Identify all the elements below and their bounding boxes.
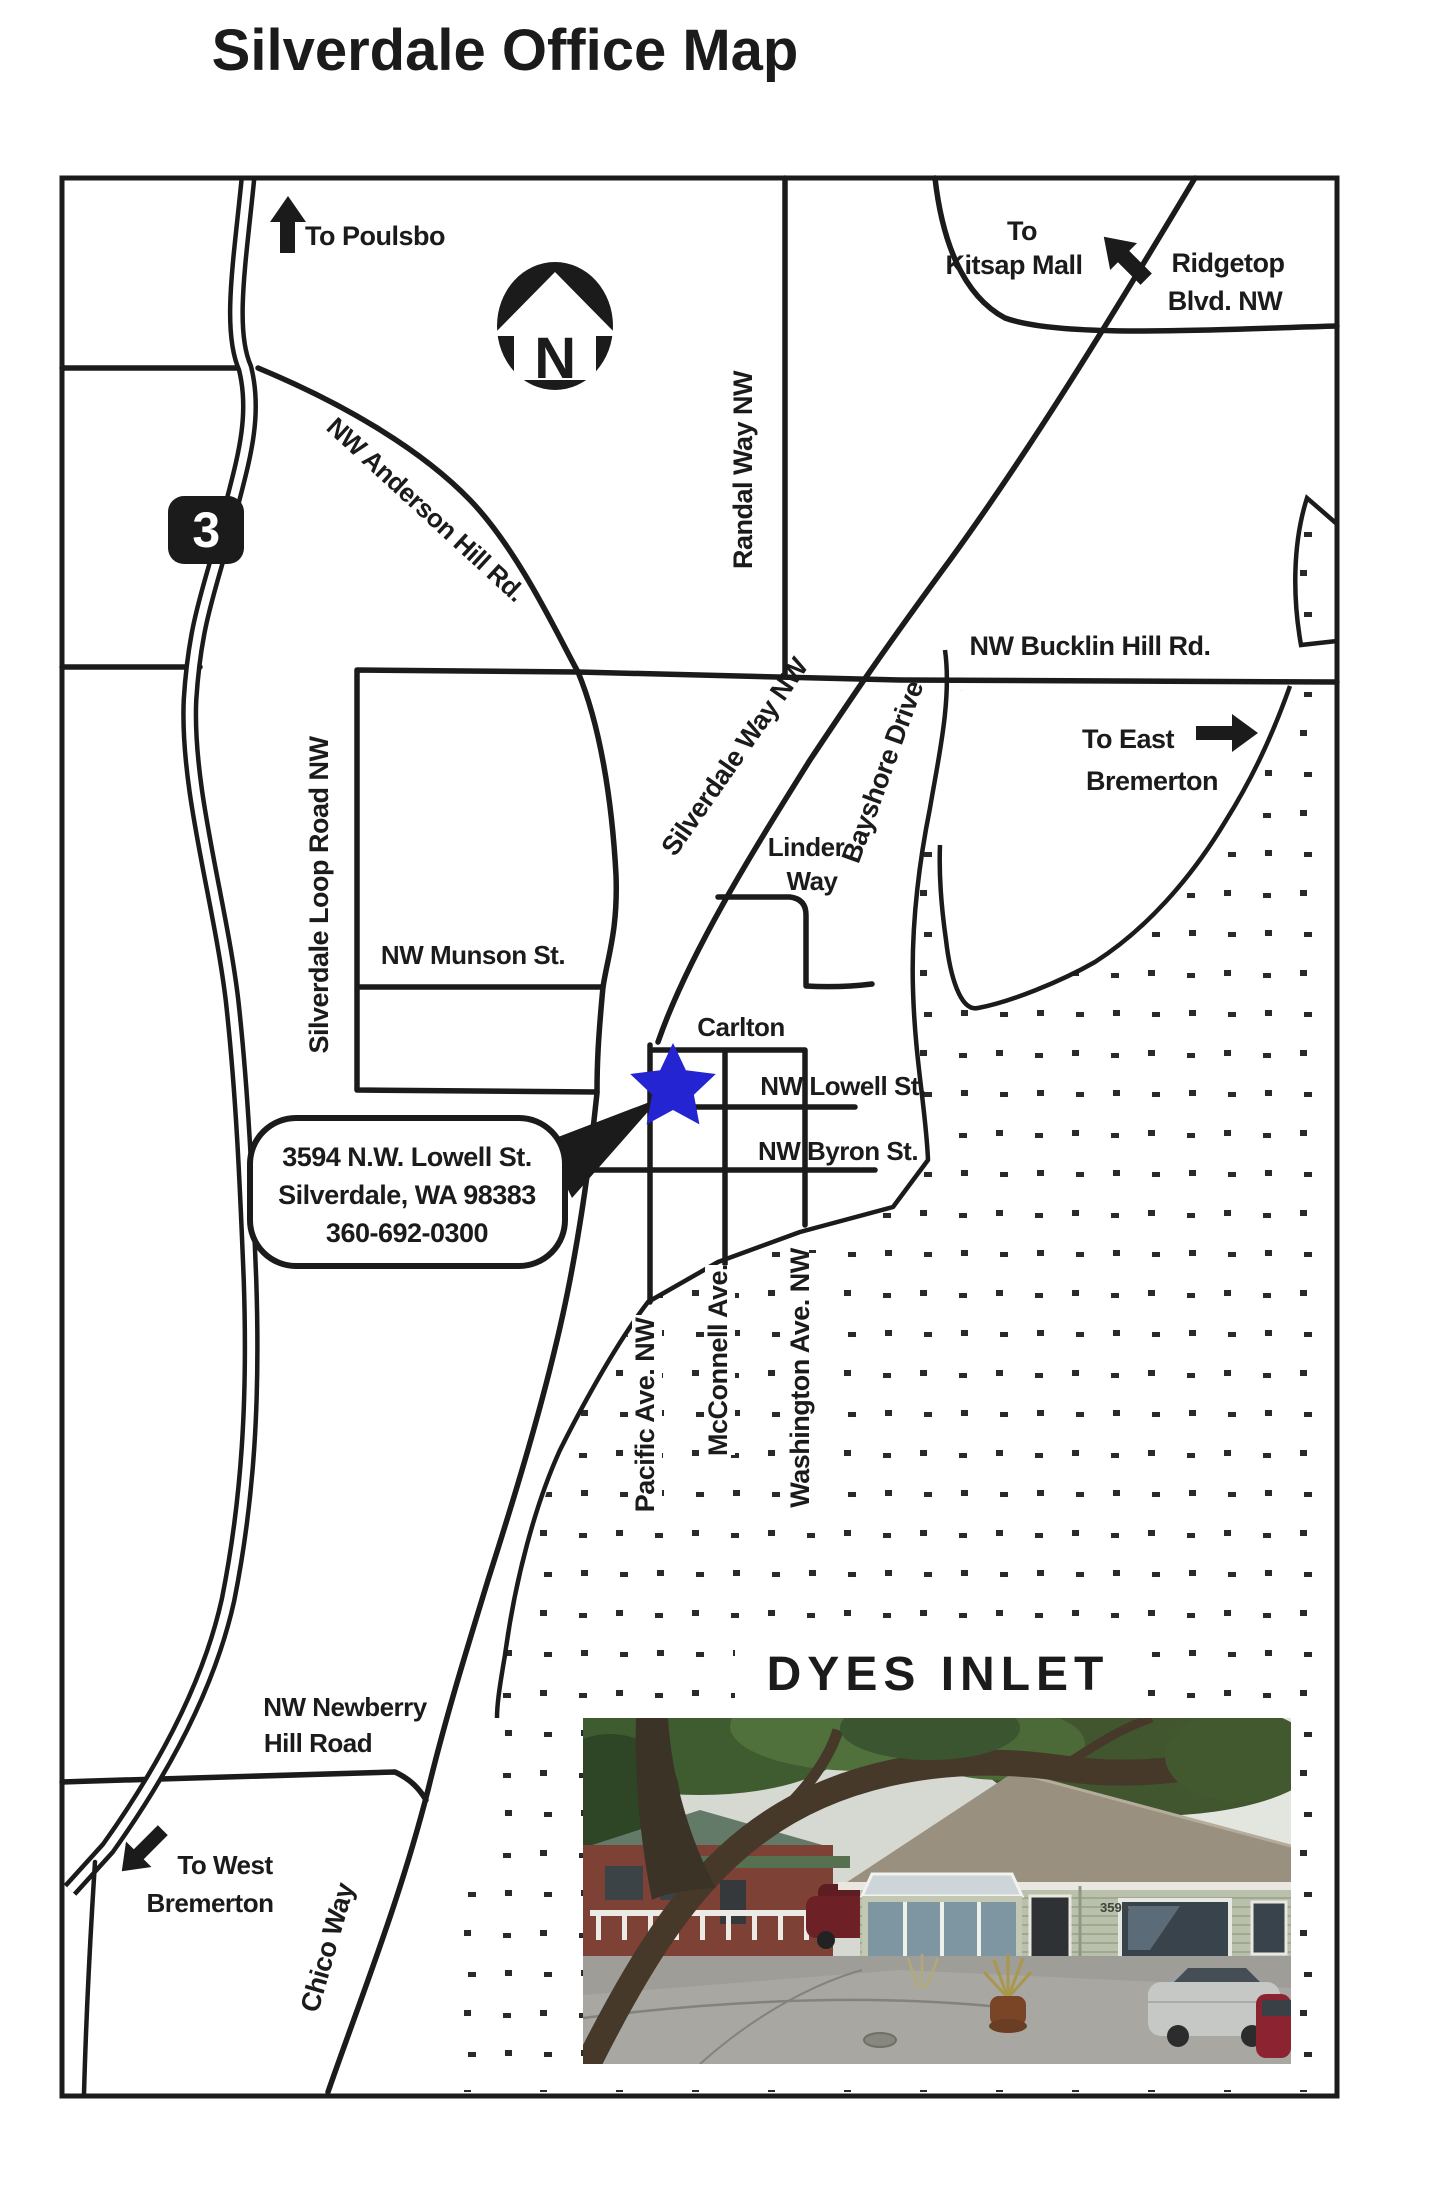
label-dyes-inlet: DYES INLET <box>767 1648 1110 1701</box>
callout-city: Silverdale, WA 98383 <box>278 1180 536 1210</box>
highway-3-shield: 3 <box>168 496 244 564</box>
label-carlton: Carlton <box>697 1012 785 1042</box>
label-east-bremerton-2: Bremerton <box>1086 766 1218 796</box>
callout-address: 3594 N.W. Lowell St. <box>282 1142 532 1172</box>
label-pacific: Pacific Ave. NW <box>630 1317 660 1513</box>
label-washington: Washington Ave. NW <box>785 1247 815 1508</box>
highway-3-number: 3 <box>192 502 219 558</box>
label-mcconnell: McConnell Ave. <box>703 1264 733 1456</box>
label-kitsap-1: To <box>1007 216 1037 246</box>
photo-window-small <box>1252 1902 1286 1954</box>
label-byron: NW Byron St. <box>758 1136 918 1166</box>
label-pacific-group: Pacific Ave. NW <box>630 1315 662 1515</box>
label-kitsap-2: Kitsap Mall <box>945 250 1082 280</box>
label-washington-group: Washington Ave. NW <box>785 1247 817 1508</box>
map-canvas: Silverdale Office Map <box>0 0 1438 2200</box>
label-ridgetop-1: Ridgetop <box>1172 248 1285 278</box>
label-newberry-2: Hill Road <box>264 1728 372 1758</box>
label-lowell: NW Lowell St. <box>760 1071 925 1101</box>
label-linder-2: Way <box>787 866 839 896</box>
label-bucklin-hill: NW Bucklin Hill Rd. <box>969 631 1210 661</box>
label-newberry-1: NW Newberry <box>263 1692 428 1722</box>
label-randal-way: Randal Way NW <box>728 370 758 569</box>
callout-phone: 360-692-0300 <box>326 1218 488 1248</box>
label-west-bremerton-2: Bremerton <box>147 1888 274 1918</box>
label-east-bremerton-1: To East <box>1082 724 1175 754</box>
page-title: Silverdale Office Map <box>212 18 799 83</box>
photo-sunroom-glass-roof <box>862 1874 1022 1896</box>
label-ridgetop-2: Blvd. NW <box>1168 286 1284 316</box>
photo-manhole <box>864 2033 896 2047</box>
photo-building-number: 3594 <box>1100 1900 1130 1915</box>
label-silverdale-loop: Silverdale Loop Road NW <box>304 735 334 1053</box>
water-dots-peninsula <box>1295 498 1337 645</box>
label-mcconnell-group: McConnell Ave. <box>703 1264 735 1456</box>
label-munson: NW Munson St. <box>381 940 565 970</box>
screenshot-page: Silverdale Office Map <box>0 0 1438 2200</box>
address-callout: 3594 N.W. Lowell St. Silverdale, WA 9838… <box>250 1118 565 1266</box>
photo-parked-car-red <box>1256 1994 1291 2058</box>
label-to-poulsbo: To Poulsbo <box>305 221 445 251</box>
office-photo: 3594 <box>540 1681 1320 2064</box>
north-letter: N <box>534 326 575 391</box>
label-west-bremerton-1: To West <box>177 1850 273 1880</box>
label-linder-1: Linder <box>768 832 845 862</box>
